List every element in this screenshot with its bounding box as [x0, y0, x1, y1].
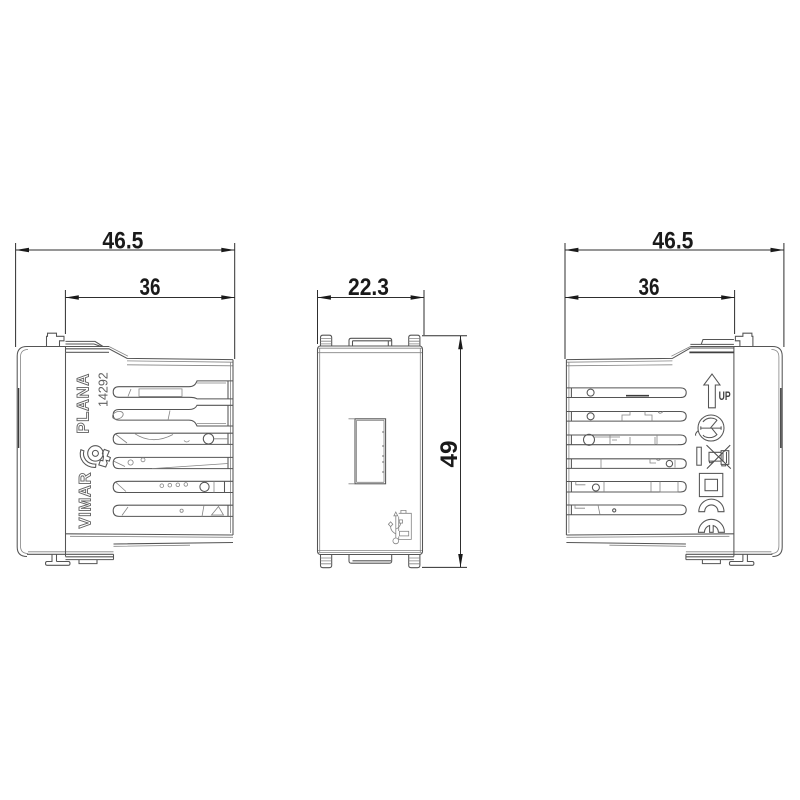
svg-text:46.5: 46.5 [102, 228, 143, 255]
svg-text:14292: 14292 [97, 372, 111, 407]
svg-text:22.3: 22.3 [348, 274, 389, 301]
svg-text:36: 36 [140, 274, 161, 301]
svg-text:46.5: 46.5 [652, 228, 693, 255]
svg-text:PLANA: PLANA [75, 373, 93, 433]
svg-text:UP: UP [719, 389, 731, 403]
svg-text:49: 49 [436, 441, 463, 468]
svg-text:VIMAR: VIMAR [77, 472, 95, 529]
svg-text:36: 36 [639, 274, 660, 301]
